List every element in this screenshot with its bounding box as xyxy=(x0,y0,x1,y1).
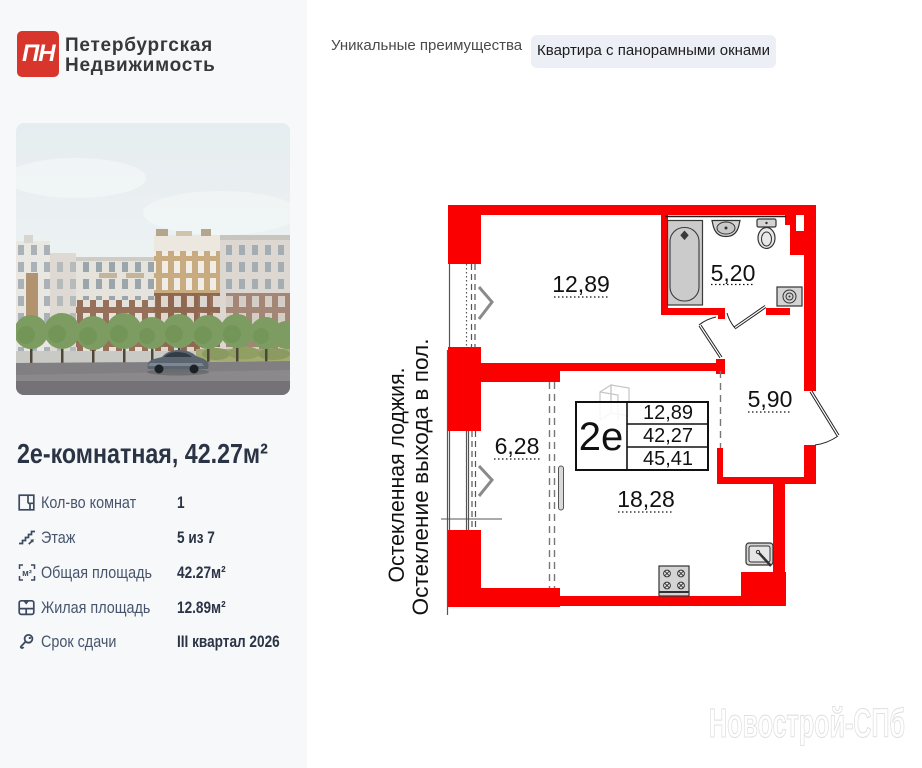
svg-text:42,27: 42,27 xyxy=(643,425,693,447)
svg-text:12,89: 12,89 xyxy=(552,271,610,297)
svg-text:Остекление выхода в пол.: Остекление выхода в пол. xyxy=(408,339,433,616)
svg-text:2е: 2е xyxy=(579,415,624,459)
svg-text:м²: м² xyxy=(22,568,32,578)
svg-text:18,28: 18,28 xyxy=(617,486,675,512)
svg-text:5,90: 5,90 xyxy=(748,386,793,412)
svg-text:12,89: 12,89 xyxy=(643,402,693,424)
svg-text:Остекленная лоджия.: Остекленная лоджия. xyxy=(384,368,409,583)
svg-text:Новострой-СПб: Новострой-СПб xyxy=(709,700,905,746)
svg-text:6,28: 6,28 xyxy=(495,433,540,459)
svg-text:45,41: 45,41 xyxy=(643,448,693,470)
svg-text:5,20: 5,20 xyxy=(711,260,756,286)
